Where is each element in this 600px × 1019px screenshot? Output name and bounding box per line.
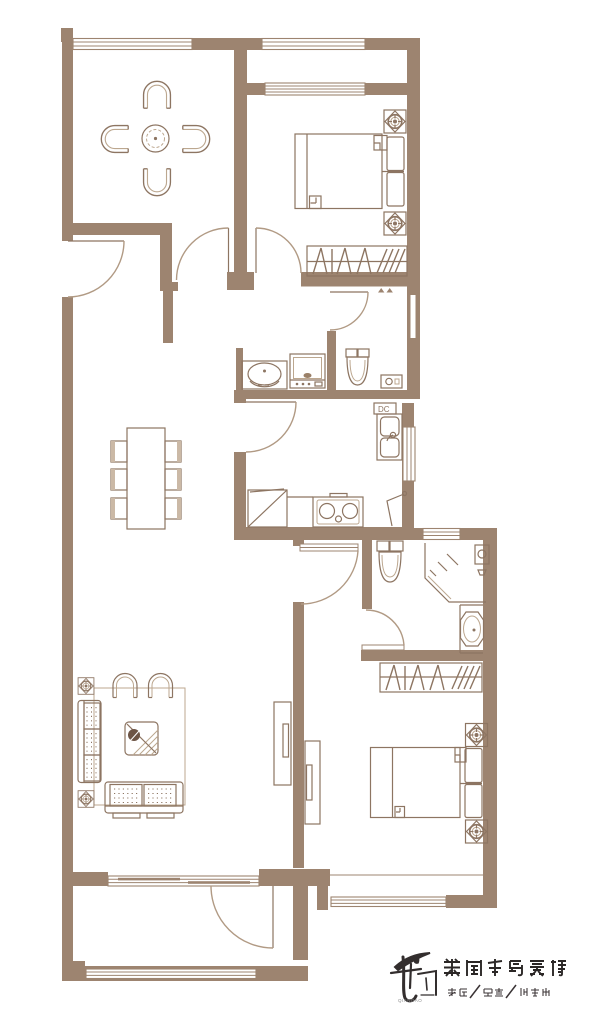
- svg-text:QIANDAO: QIANDAO: [398, 998, 422, 1003]
- svg-text:DC: DC: [378, 405, 390, 414]
